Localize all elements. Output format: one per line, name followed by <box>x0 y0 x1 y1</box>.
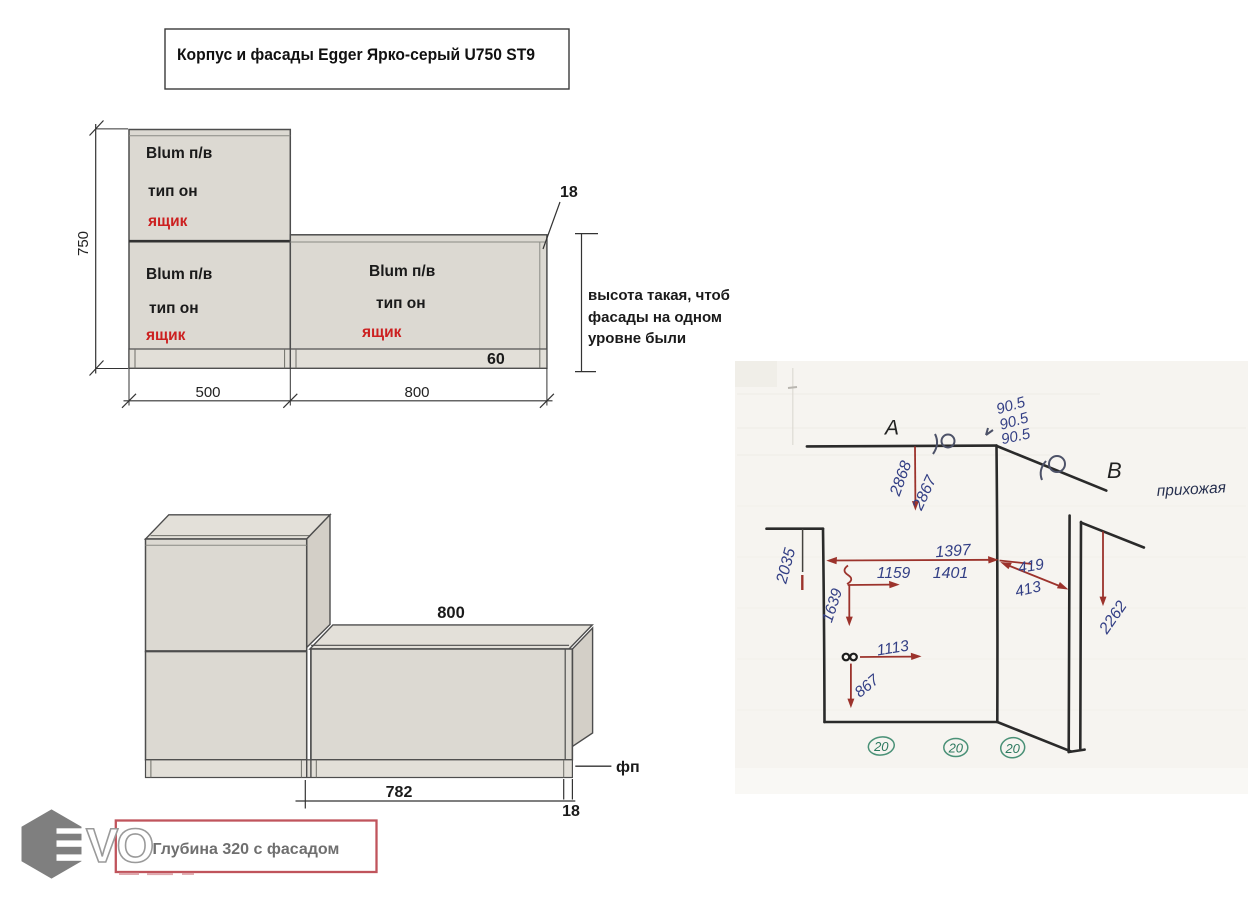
svg-text:Blum п/в: Blum п/в <box>146 145 212 162</box>
svg-text:20: 20 <box>873 739 889 754</box>
svg-text:1401: 1401 <box>933 565 969 582</box>
svg-text:20: 20 <box>948 741 964 756</box>
svg-text:фп: фп <box>616 759 640 776</box>
svg-text:высота такая, чтоб: высота такая, чтоб <box>588 287 730 304</box>
svg-text:A: A <box>883 417 899 440</box>
svg-text:Blum п/в: Blum п/в <box>369 263 435 280</box>
svg-text:800: 800 <box>437 604 465 622</box>
svg-text:B: B <box>1107 458 1122 483</box>
svg-text:тип он: тип он <box>149 300 199 317</box>
svg-text:Корпус и фасады Egger Ярко-сер: Корпус и фасады Egger Ярко-серый U750 ST… <box>177 46 535 64</box>
svg-text:18: 18 <box>560 184 578 201</box>
svg-text:Blum п/в: Blum п/в <box>146 266 212 283</box>
svg-text:уровне были: уровне были <box>588 330 686 347</box>
svg-text:1159: 1159 <box>877 565 911 582</box>
svg-text:прихожая: прихожая <box>1156 479 1226 500</box>
svg-text:O: O <box>117 819 155 873</box>
svg-text:20: 20 <box>1004 741 1020 756</box>
svg-text:1397: 1397 <box>935 542 973 562</box>
svg-text:ящик: ящик <box>148 213 188 230</box>
svg-text:750: 750 <box>75 231 92 256</box>
svg-text:Глубина 320 с фасадом: Глубина 320 с фасадом <box>153 841 340 858</box>
svg-text:V: V <box>86 819 119 873</box>
svg-text:ящик: ящик <box>362 324 402 341</box>
svg-text:18: 18 <box>562 803 580 820</box>
svg-text:ящик: ящик <box>146 327 186 344</box>
svg-text:тип он: тип он <box>376 295 426 312</box>
svg-text:800: 800 <box>404 384 429 401</box>
svg-text:60: 60 <box>487 351 505 368</box>
svg-text:782: 782 <box>386 784 413 801</box>
svg-text:500: 500 <box>195 384 220 401</box>
svg-text:фасады на одном: фасады на одном <box>588 309 722 326</box>
svg-text:тип он: тип он <box>148 183 198 200</box>
